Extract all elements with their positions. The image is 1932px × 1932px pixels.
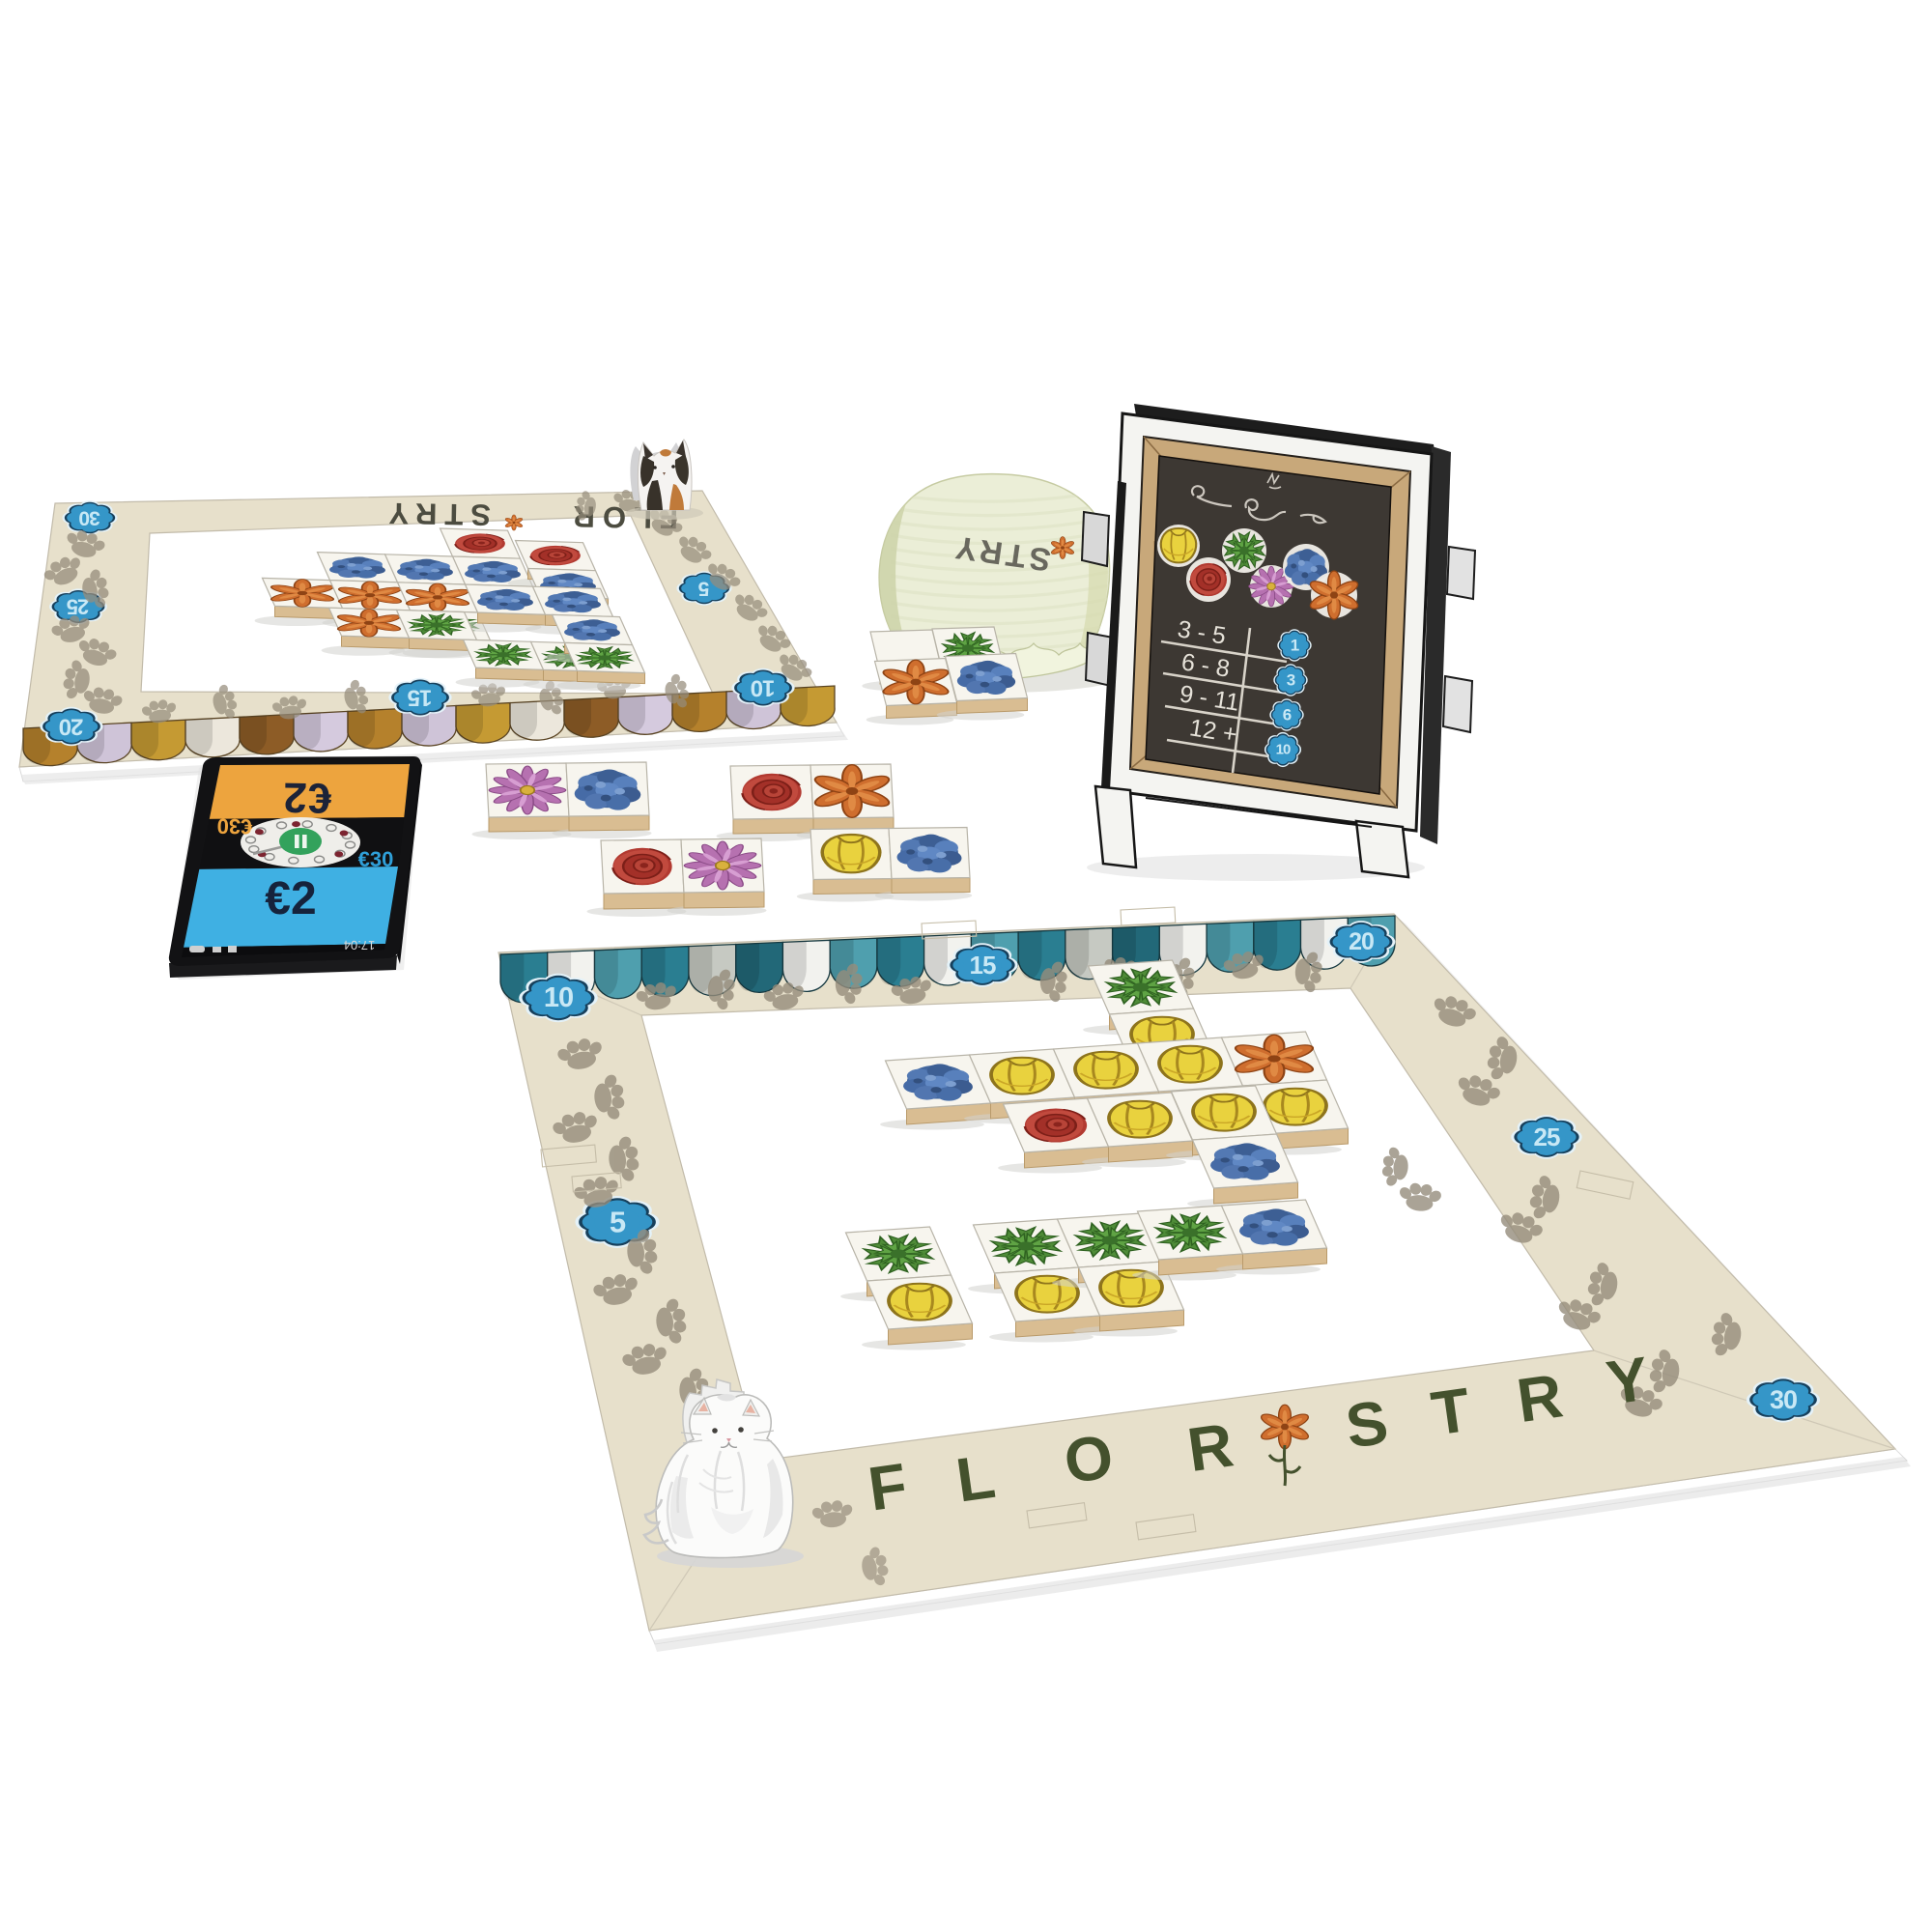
svg-text:10: 10 — [1276, 742, 1291, 758]
svg-text:5: 5 — [697, 578, 709, 600]
svg-text:20: 20 — [59, 714, 83, 740]
svg-text:€30: €30 — [216, 814, 252, 839]
svg-text:30: 30 — [1770, 1385, 1797, 1414]
svg-text:5: 5 — [610, 1206, 626, 1239]
svg-text:17:04: 17:04 — [344, 938, 376, 953]
svg-text:25: 25 — [1534, 1122, 1560, 1151]
svg-text:1: 1 — [1291, 637, 1299, 655]
svg-text:€2: €2 — [282, 774, 332, 822]
svg-text:STRY: STRY — [381, 497, 491, 532]
svg-text:6: 6 — [1283, 706, 1292, 724]
svg-text:3: 3 — [1287, 671, 1295, 690]
svg-text:€30: €30 — [358, 847, 394, 871]
svg-text:10: 10 — [544, 982, 573, 1013]
svg-text:10: 10 — [751, 675, 775, 701]
svg-text:20: 20 — [1349, 928, 1374, 955]
svg-text:O: O — [1060, 1421, 1117, 1496]
svg-text:15: 15 — [970, 951, 996, 980]
svg-text:30: 30 — [79, 507, 100, 529]
svg-text:€2: €2 — [265, 873, 316, 924]
svg-text:15: 15 — [408, 685, 432, 711]
